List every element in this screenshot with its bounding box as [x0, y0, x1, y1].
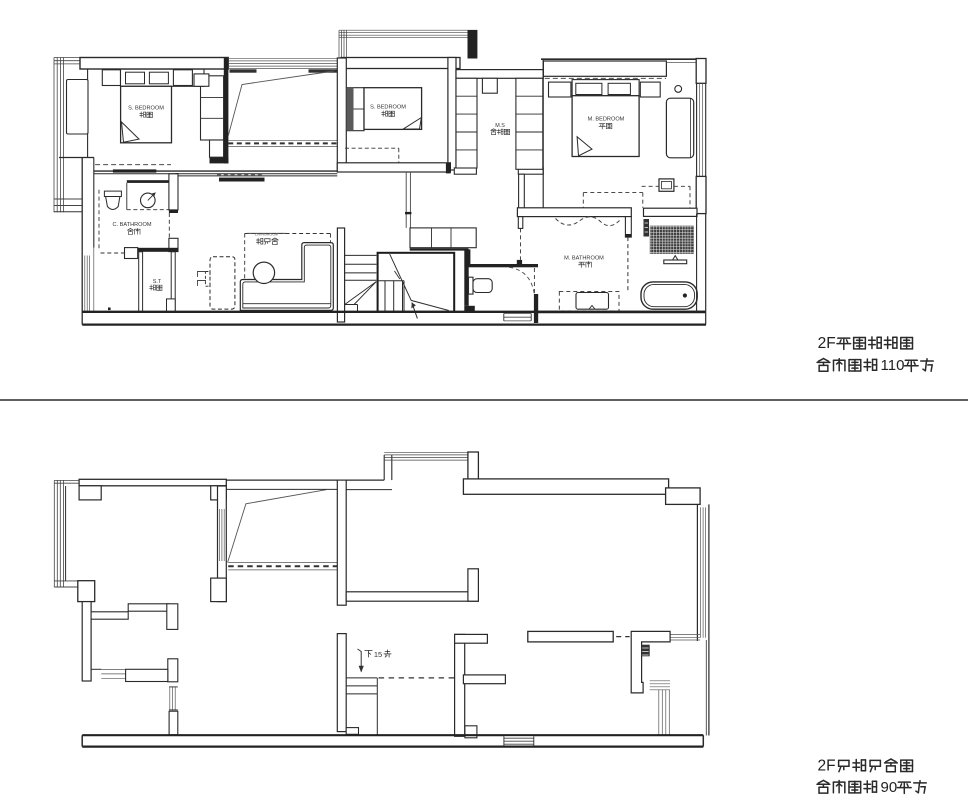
svg-text:90: 90 [881, 779, 898, 796]
svg-text:2F: 2F [818, 758, 836, 775]
svg-text:C. BATHROOM: C. BATHROOM [112, 222, 151, 228]
svg-text:S. BEDROOM: S. BEDROOM [370, 105, 406, 111]
svg-text:15: 15 [374, 650, 382, 659]
svg-text:LIVINGROOM: LIVINGROOM [255, 232, 278, 236]
svg-text:S.T: S.T [153, 279, 162, 285]
svg-text:S. BEDROOM: S. BEDROOM [128, 106, 164, 112]
svg-text:M. BATHROOM: M. BATHROOM [564, 255, 604, 261]
svg-text:M.S: M.S [495, 123, 505, 129]
svg-text:110: 110 [881, 357, 905, 374]
svg-text:M. BEDROOM: M. BEDROOM [588, 117, 625, 123]
svg-text:2F: 2F [818, 335, 836, 352]
